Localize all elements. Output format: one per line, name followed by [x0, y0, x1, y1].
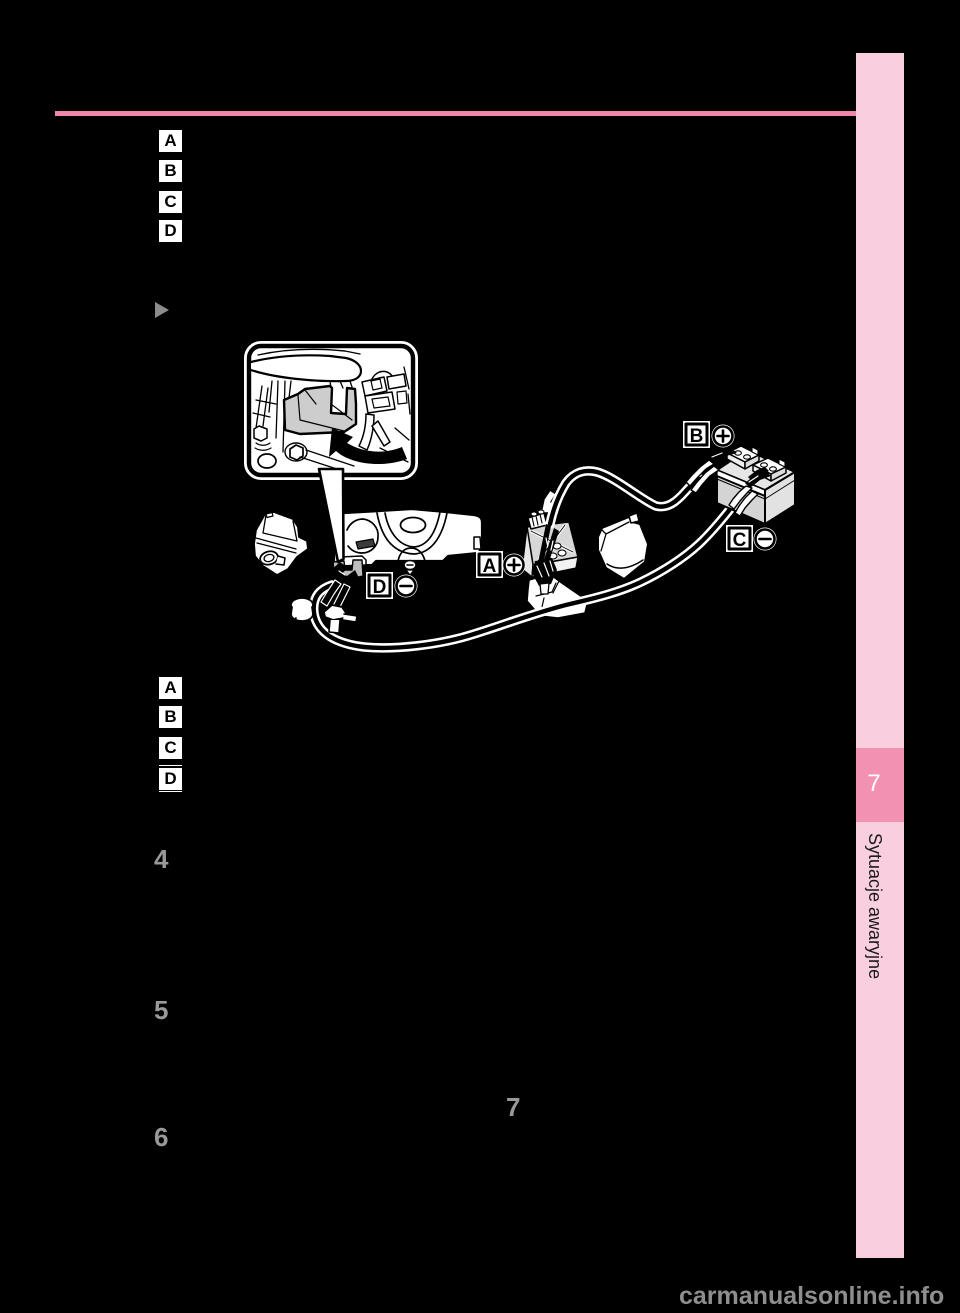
- svg-text:C: C: [733, 530, 747, 551]
- svg-text:B: B: [690, 426, 704, 447]
- svg-text:D: D: [373, 577, 387, 598]
- svg-text:A: A: [483, 556, 497, 577]
